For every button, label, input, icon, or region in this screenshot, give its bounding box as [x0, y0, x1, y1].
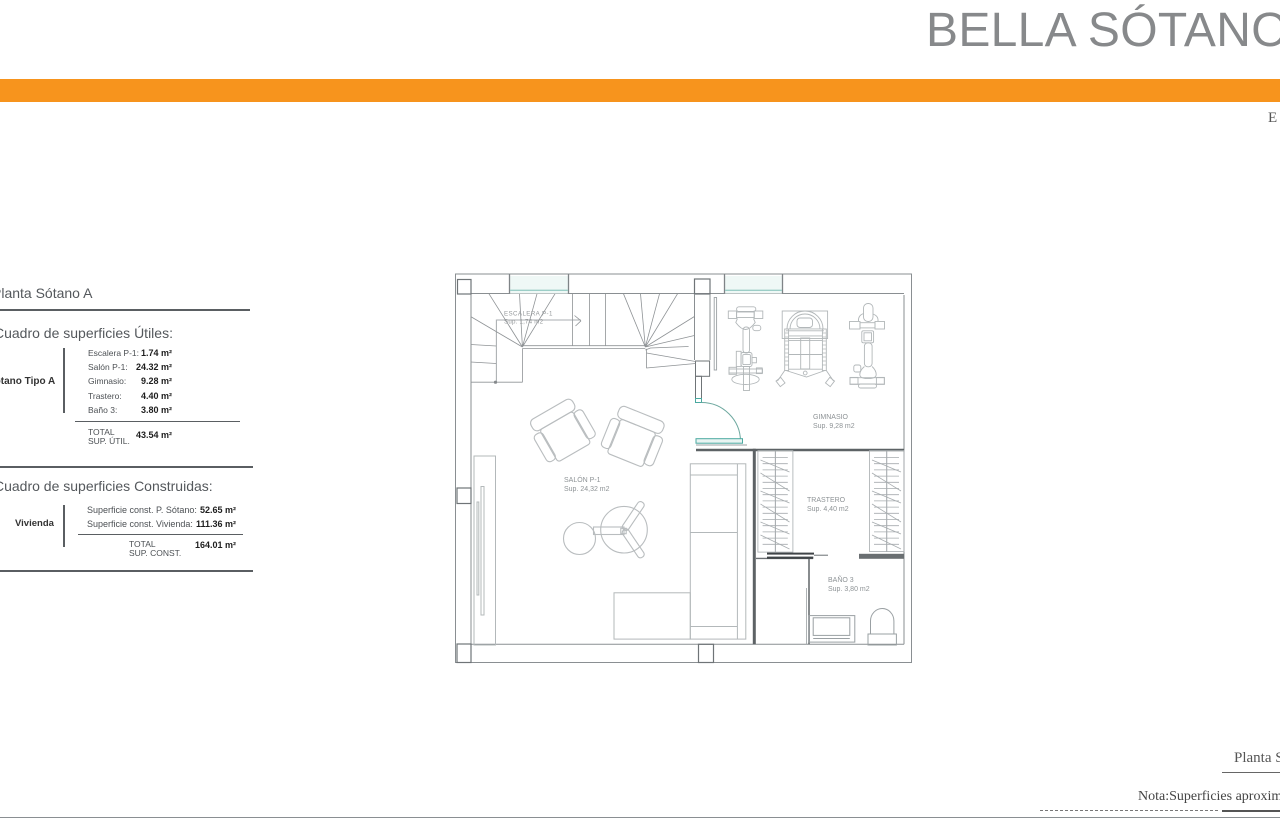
- svg-text:Sup. 1,74 m2: Sup. 1,74 m2: [504, 319, 544, 326]
- svg-text:Sup. 3,80 m2: Sup. 3,80 m2: [828, 586, 870, 593]
- svg-text:TRASTERO: TRASTERO: [807, 497, 846, 504]
- svg-text:Sup. 4,40 m2: Sup. 4,40 m2: [807, 506, 849, 513]
- svg-text:GIMNASIO: GIMNASIO: [813, 414, 849, 421]
- svg-text:ESCALERA P-1: ESCALERA P-1: [504, 311, 553, 318]
- svg-text:Sup. 9,28 m2: Sup. 9,28 m2: [813, 423, 855, 430]
- svg-text:BAÑO 3: BAÑO 3: [828, 575, 854, 584]
- svg-text:SALÓN P-1: SALÓN P-1: [564, 475, 601, 484]
- svg-text:Sup. 24,32 m2: Sup. 24,32 m2: [564, 486, 610, 493]
